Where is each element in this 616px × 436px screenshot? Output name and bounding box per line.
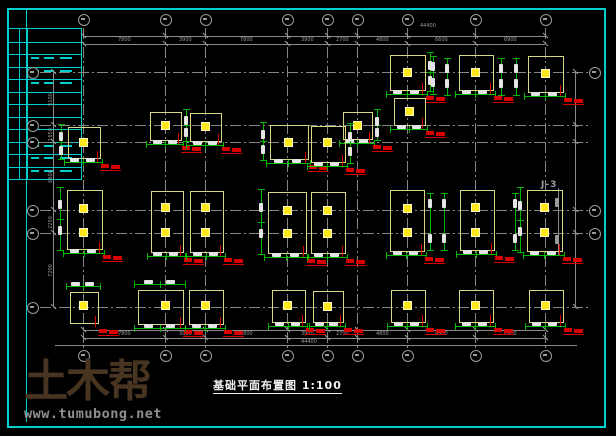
- foundation-label-mark: [194, 331, 203, 335]
- axis-bubble-glyph: [543, 354, 547, 356]
- dim-text-blob: [192, 324, 201, 328]
- dimension-bar-tick: [455, 323, 456, 330]
- column-square: [201, 122, 210, 131]
- dim-text-blob: [375, 128, 379, 137]
- axis-bubble: [589, 205, 601, 217]
- dim-text-blob: [208, 324, 217, 328]
- dim-text-blob: [166, 280, 175, 284]
- axis-bubble-glyph: [163, 354, 167, 356]
- axis-bubble-glyph: [30, 306, 34, 308]
- foundation-label-leader: [218, 134, 219, 145]
- foundation-label-mark: [426, 96, 434, 100]
- dim-text-blob: [514, 79, 518, 88]
- dim-text-blob: [153, 140, 162, 144]
- dim-text-blob: [70, 158, 79, 162]
- axis-bubble-glyph: [30, 141, 34, 143]
- foundation-label-mark: [232, 148, 241, 152]
- dimension-bar-tick: [266, 160, 267, 167]
- foundation-label-underline: [345, 265, 366, 266]
- dimension-bar-tick: [260, 141, 267, 142]
- column-square: [161, 121, 170, 130]
- dimension-bar-tick: [288, 160, 289, 167]
- foundation-label-leader: [178, 133, 179, 144]
- dimension-bar-tick: [544, 252, 545, 259]
- foundation-label-mark: [574, 99, 583, 103]
- dim-text-blob: [58, 200, 62, 209]
- foundation-label-underline: [306, 265, 327, 266]
- foundation-label-mark: [564, 328, 572, 332]
- dim-text-blob: [314, 253, 323, 257]
- column-square: [283, 301, 292, 310]
- dim-text-blob: [59, 146, 63, 155]
- foundation-label-leader: [491, 243, 492, 254]
- dim-text-blob: [410, 322, 419, 326]
- dim-text-blob: [144, 324, 153, 328]
- dimension-bar-tick: [258, 254, 265, 255]
- foundation-label-mark: [113, 256, 122, 260]
- foundation-label-mark: [426, 131, 434, 135]
- axis-bubble: [200, 14, 212, 26]
- dimension-bar-tick: [407, 91, 408, 98]
- foundation-label-leader: [490, 83, 491, 94]
- axis-bubble: [27, 120, 39, 132]
- column-square: [405, 107, 414, 116]
- dimension-bar-tick: [357, 140, 358, 147]
- dim-text-blob: [70, 249, 79, 253]
- column-square: [323, 206, 332, 215]
- axis-bubble: [27, 302, 39, 314]
- foundation-label-leader: [422, 83, 423, 94]
- dimension-bar-tick: [327, 163, 328, 170]
- foundation-label-mark: [109, 330, 118, 334]
- dimension-bar-tick: [288, 323, 289, 330]
- axis-bubble: [200, 350, 212, 362]
- foundation-label-mark: [111, 165, 120, 169]
- axis-bubble: [27, 205, 39, 217]
- dimension-bar-tick: [160, 325, 161, 332]
- column-square: [471, 68, 480, 77]
- dim-text-blob: [548, 322, 557, 326]
- foundation-label-mark: [504, 97, 513, 101]
- dimension-text: 7800: [118, 38, 131, 43]
- column-square: [323, 138, 332, 147]
- dimension-bar-tick: [427, 52, 434, 53]
- axis-bubble: [322, 14, 334, 26]
- foundation-label-leader: [220, 245, 221, 256]
- axis-bubble-glyph: [592, 71, 596, 73]
- foundation-label-leader: [342, 246, 343, 257]
- dimension-bar-tick: [57, 219, 64, 220]
- axis-bubble-glyph: [473, 354, 477, 356]
- foundation-label-mark: [192, 147, 201, 151]
- foundation-label-underline: [305, 334, 326, 335]
- dim-text-blob: [393, 90, 402, 94]
- dimension-bar-tick: [205, 142, 206, 149]
- foundation-label-underline: [424, 263, 445, 264]
- column-square: [161, 301, 170, 310]
- column-square: [161, 228, 170, 237]
- dimension-bar-tick: [260, 122, 267, 123]
- axis-bubble: [402, 14, 414, 26]
- dimension-bar-tick: [525, 323, 526, 330]
- column-square: [471, 301, 480, 310]
- dimension-bar-tick: [309, 323, 310, 330]
- axis-bubble-glyph: [473, 18, 477, 20]
- dim-text-blob: [442, 199, 446, 208]
- dimension-bar-tick: [456, 251, 457, 258]
- column-square: [79, 204, 88, 213]
- axis-bubble-glyph: [203, 18, 207, 20]
- dim-text-blob: [518, 201, 522, 210]
- foundation-label-mark: [99, 329, 107, 333]
- dimension-bar-tick: [517, 220, 524, 221]
- dimension-bar-tick: [185, 325, 186, 332]
- axis-bubble: [470, 350, 482, 362]
- dimension-bar-tick: [66, 283, 67, 290]
- foundation-label-leader: [95, 316, 96, 327]
- dimension-text: 6900: [504, 38, 517, 43]
- dimension-bar-tick: [512, 250, 519, 251]
- dimension-bar-tick: [58, 142, 65, 143]
- dimension-bar-tick: [146, 141, 147, 148]
- dimension-bar-tick: [165, 141, 166, 148]
- dimension-text: 1650: [49, 128, 54, 141]
- dimension-bar-tick: [286, 254, 287, 261]
- foundation-label-underline: [102, 261, 123, 262]
- dim-text-blob: [397, 125, 406, 129]
- dim-text-blob: [58, 226, 62, 235]
- dim-text-blob: [87, 249, 96, 253]
- dim-text-blob: [462, 90, 471, 94]
- dimension-bar-tick: [307, 254, 308, 261]
- foundation-label-mark: [504, 329, 513, 333]
- foundation-label-underline: [562, 263, 583, 264]
- dim-text-blob: [85, 282, 94, 286]
- dimension-text: 6600: [435, 38, 448, 43]
- dim-text-blob: [410, 90, 419, 94]
- dim-text-blob: [359, 139, 368, 143]
- foundation-label-underline: [372, 151, 393, 152]
- dim-text-blob: [330, 162, 339, 166]
- axis-bubble: [352, 14, 364, 26]
- column-square: [403, 68, 412, 77]
- foundation-label-leader: [559, 244, 560, 255]
- column-square: [201, 228, 210, 237]
- dim-text-blob: [547, 251, 556, 255]
- dimension-bar-tick: [183, 125, 190, 126]
- dim-text-blob: [428, 234, 432, 243]
- dimension-bar-tick: [347, 143, 354, 144]
- dimension-bar-tick: [327, 254, 328, 261]
- foundation-label-mark: [436, 132, 445, 136]
- foundation-label-leader: [220, 317, 221, 328]
- dimension-bar-tick: [409, 126, 410, 133]
- dim-text-blob: [393, 251, 402, 255]
- dim-text-blob: [431, 62, 435, 71]
- dimension-bar-tick: [134, 281, 135, 288]
- foundation-label-underline: [425, 137, 446, 138]
- dimension-text: 5100: [49, 93, 54, 106]
- footing-outline: [268, 192, 307, 254]
- foundation-label-mark: [564, 98, 572, 102]
- axis-bubble-glyph: [30, 232, 34, 234]
- foundation-label-leader: [342, 155, 343, 166]
- column-square: [541, 69, 550, 78]
- axis-bubble-glyph: [30, 124, 34, 126]
- dimension-bar-tick: [268, 323, 269, 330]
- dim-text-blob: [290, 253, 299, 257]
- dimension-bar-tick: [517, 252, 524, 253]
- dim-text-blob: [530, 251, 539, 255]
- foundation-label-leader: [369, 132, 370, 143]
- column-square: [540, 228, 549, 237]
- dimension-bar-tick: [444, 58, 451, 59]
- dim-text-blob: [513, 199, 517, 208]
- foundation-label-mark: [317, 260, 326, 264]
- dimension-bar-tick: [386, 91, 387, 98]
- dim-text-blob: [86, 158, 95, 162]
- axis-bubble: [470, 14, 482, 26]
- dimension-bar-tick: [475, 91, 476, 98]
- dimension-bar-tick: [206, 253, 207, 260]
- foundation-label-mark: [306, 328, 314, 332]
- axis-bubble-glyph: [355, 18, 359, 20]
- foundation-label-leader: [303, 246, 304, 257]
- dimension-bar-tick: [545, 93, 546, 100]
- dimension-bar-tick: [100, 283, 101, 290]
- dim-text-blob: [314, 162, 323, 166]
- axis-bubble-glyph: [355, 354, 359, 356]
- dimension-bar-tick: [347, 123, 354, 124]
- dim-text-blob: [532, 322, 541, 326]
- column-square: [541, 301, 550, 310]
- foundation-label-mark: [494, 96, 502, 100]
- column-square: [353, 121, 362, 130]
- foundation-label-leader: [560, 315, 561, 326]
- foundation-label-underline: [425, 102, 446, 103]
- dimension-bar-tick: [374, 109, 381, 110]
- footing-outline: [527, 190, 563, 252]
- foundation-label-underline: [223, 336, 244, 337]
- foundation-label-mark: [194, 259, 203, 263]
- dimension-total-top: 44400: [420, 24, 436, 29]
- foundation-label-underline: [343, 334, 364, 335]
- foundation-label-underline: [223, 264, 244, 265]
- footing-outline: [151, 191, 184, 253]
- axis-bubble-glyph: [405, 18, 409, 20]
- foundation-label-mark: [495, 256, 503, 260]
- foundation-label-mark: [373, 145, 381, 149]
- footing-outline: [190, 191, 224, 253]
- foundation-label-leader: [421, 244, 422, 255]
- foundation-label-mark: [436, 329, 445, 333]
- axis-bubble: [589, 228, 601, 240]
- axis-bubble-glyph: [592, 232, 596, 234]
- foundation-label-leader: [305, 152, 306, 163]
- foundation-label-leader: [97, 151, 98, 162]
- dim-text-blob: [462, 322, 471, 326]
- foundation-label-mark: [101, 164, 109, 168]
- dimension-text: 7800: [118, 332, 131, 337]
- dimension-bar-tick: [205, 325, 206, 332]
- column-square: [201, 301, 210, 310]
- watermark-brand: 土木帮: [24, 358, 162, 406]
- foundation-label-mark: [316, 329, 325, 333]
- axis-bubble: [589, 67, 601, 79]
- dimension-bar-tick: [134, 325, 135, 332]
- dim-text-blob: [330, 253, 339, 257]
- foundation-label-underline: [221, 153, 242, 154]
- dim-text-blob: [184, 116, 188, 125]
- axis-bubble: [27, 67, 39, 79]
- dimension-bar-tick: [185, 281, 186, 288]
- axis-bubble: [282, 350, 294, 362]
- foundation-label-mark: [224, 258, 232, 262]
- footing-outline: [67, 190, 103, 250]
- dimension-bar-tick: [513, 58, 520, 59]
- dimension-bar-tick: [427, 193, 434, 194]
- dimension-bar-tick: [475, 323, 476, 330]
- column-square: [403, 204, 412, 213]
- foundation-label-underline: [345, 174, 366, 175]
- dim-text-blob: [348, 132, 352, 141]
- foundation-label-underline: [98, 335, 119, 336]
- drawing-title: 基础平面布置图 1:100: [213, 379, 342, 394]
- foundation-label-underline: [494, 262, 515, 263]
- drawing-scale: 1:100: [302, 379, 342, 392]
- dimension-bar-tick: [260, 160, 267, 161]
- dimension-bar-tick: [441, 250, 448, 251]
- column-square: [403, 228, 412, 237]
- dim-text-blob: [428, 199, 432, 208]
- dim-text-blob: [514, 64, 518, 73]
- axis-bubble: [402, 350, 414, 362]
- dim-text-blob: [168, 140, 177, 144]
- dim-text-blob: [315, 322, 324, 326]
- foundation-label-mark: [435, 258, 444, 262]
- axis-bubble: [27, 137, 39, 149]
- axis-bubble: [27, 228, 39, 240]
- foundation-label-leader: [180, 317, 181, 328]
- axis-bubble-glyph: [405, 354, 409, 356]
- foundation-label-mark: [222, 147, 230, 151]
- foundation-label-mark: [103, 255, 111, 259]
- foundation-label-leader: [99, 242, 100, 253]
- foundation-label-mark: [356, 169, 365, 173]
- foundation-label-mark: [356, 260, 365, 264]
- axis-bubble-glyph: [325, 18, 329, 20]
- dim-text-blob: [499, 64, 503, 73]
- axis-bubble: [540, 14, 552, 26]
- foundation-label-mark: [234, 331, 243, 335]
- dimension-bar-tick: [58, 159, 65, 160]
- column-square: [403, 301, 412, 310]
- dimension-text: 2250: [49, 216, 54, 229]
- column-square: [284, 138, 293, 147]
- dimension-bar-tick: [390, 126, 391, 133]
- dimension-bar-tick: [84, 250, 85, 257]
- cad-sheet: 7800780039003900780078003900390027002700…: [0, 0, 616, 436]
- dim-text-blob: [479, 250, 488, 254]
- dim-text-blob: [261, 130, 265, 139]
- foundation-label-mark: [494, 328, 502, 332]
- dim-text-blob: [166, 324, 175, 328]
- foundation-label-leader: [180, 245, 181, 256]
- foundation-label-mark: [426, 328, 434, 332]
- dimension-bar-tick: [524, 93, 525, 100]
- footing-outline: [311, 192, 346, 254]
- dimension-text: 2700: [336, 38, 349, 43]
- foundation-label-mark: [234, 259, 243, 263]
- watermark: 土木帮 www.tumubong.net: [24, 358, 162, 422]
- dim-text-blob: [431, 78, 435, 87]
- foundation-label-underline: [100, 170, 121, 171]
- axis-bubble-glyph: [30, 71, 34, 73]
- foundation-label-underline: [425, 334, 446, 335]
- dim-text-blob: [513, 234, 517, 243]
- dimension-bar-tick: [264, 254, 265, 261]
- dimension-line: [575, 72, 576, 307]
- dimension-text: 7800: [240, 38, 253, 43]
- foundation-label-mark: [383, 146, 392, 150]
- dim-text-blob: [153, 252, 162, 256]
- dim-text-blob: [169, 252, 178, 256]
- dimension-bar-tick: [441, 193, 448, 194]
- dimension-bar-tick: [430, 94, 437, 95]
- foundation-label-mark: [346, 168, 354, 172]
- column-square: [283, 229, 292, 238]
- dim-text-blob: [463, 250, 472, 254]
- drawing-title-text: 基础平面布置图: [213, 379, 297, 392]
- dim-text-blob: [478, 322, 487, 326]
- dimension-bar-tick: [455, 91, 456, 98]
- foundation-label-underline: [563, 334, 584, 335]
- dim-text-blob: [445, 64, 449, 73]
- dim-text-blob: [193, 252, 202, 256]
- axis-bubble-glyph: [325, 354, 329, 356]
- foundation-label-mark: [346, 259, 354, 263]
- grid-note-j3: J-3: [541, 180, 557, 190]
- dimension-bar-tick: [63, 250, 64, 257]
- column-square: [323, 229, 332, 238]
- axis-bubble: [160, 14, 172, 26]
- axis-bubble: [540, 350, 552, 362]
- dim-text-blob: [275, 322, 284, 326]
- dimension-bar-tick: [476, 251, 477, 258]
- foundation-label-mark: [425, 257, 433, 261]
- dimension-text: 3900: [179, 38, 192, 43]
- column-square: [79, 301, 88, 310]
- foundation-label-leader: [340, 315, 341, 326]
- foundation-label-mark: [184, 258, 192, 262]
- dimension-bar-tick: [57, 187, 64, 188]
- axis-bubble-glyph: [30, 209, 34, 211]
- dimension-bar-tick: [545, 323, 546, 330]
- dimension-bar-tick: [444, 95, 451, 96]
- foundation-label-mark: [563, 257, 571, 261]
- foundation-label-underline: [308, 171, 329, 172]
- dimension-bar-tick: [498, 58, 505, 59]
- dimension-bar-tick: [58, 124, 65, 125]
- axis-bubble-glyph: [163, 18, 167, 20]
- dim-text-blob: [518, 227, 522, 236]
- dimension-bar-tick: [57, 250, 64, 251]
- dim-text-blob: [291, 322, 300, 326]
- dim-text-blob: [394, 322, 403, 326]
- dimension-text: 4800: [376, 38, 389, 43]
- axis-bubble-glyph: [285, 354, 289, 356]
- dim-text-blob: [259, 229, 263, 238]
